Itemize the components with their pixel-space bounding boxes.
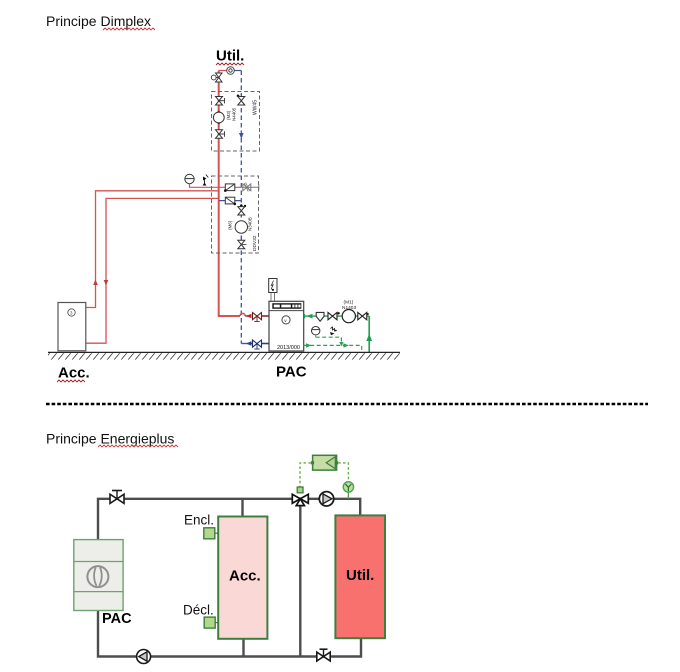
svg-text:Util.: Util. xyxy=(346,567,374,584)
svg-text:Encl.: Encl. xyxy=(184,513,214,528)
svg-text:2013/000: 2013/000 xyxy=(277,345,300,351)
svg-text:(M1): (M1) xyxy=(344,300,354,306)
svg-text:N340B: N340B xyxy=(248,217,253,231)
svg-text:Principe Energieplus: Principe Energieplus xyxy=(46,431,174,447)
svg-text:N4405: N4405 xyxy=(232,107,237,121)
svg-text:(M3): (M3) xyxy=(226,110,231,120)
svg-text:Décl.: Décl. xyxy=(183,603,214,618)
svg-text:DDV32: DDV32 xyxy=(252,235,258,251)
svg-text:Util.: Util. xyxy=(216,48,244,65)
svg-text:N1403: N1403 xyxy=(342,305,356,311)
svg-text:Acc.: Acc. xyxy=(229,568,261,585)
svg-text:(M6): (M6) xyxy=(228,220,233,230)
svg-text:Acc.: Acc. xyxy=(58,365,90,382)
svg-text:PAC: PAC xyxy=(276,364,307,381)
svg-text:WW45: WW45 xyxy=(253,100,259,115)
svg-text:Principe Dimplex: Principe Dimplex xyxy=(46,13,151,29)
svg-text:PAC: PAC xyxy=(102,611,132,627)
